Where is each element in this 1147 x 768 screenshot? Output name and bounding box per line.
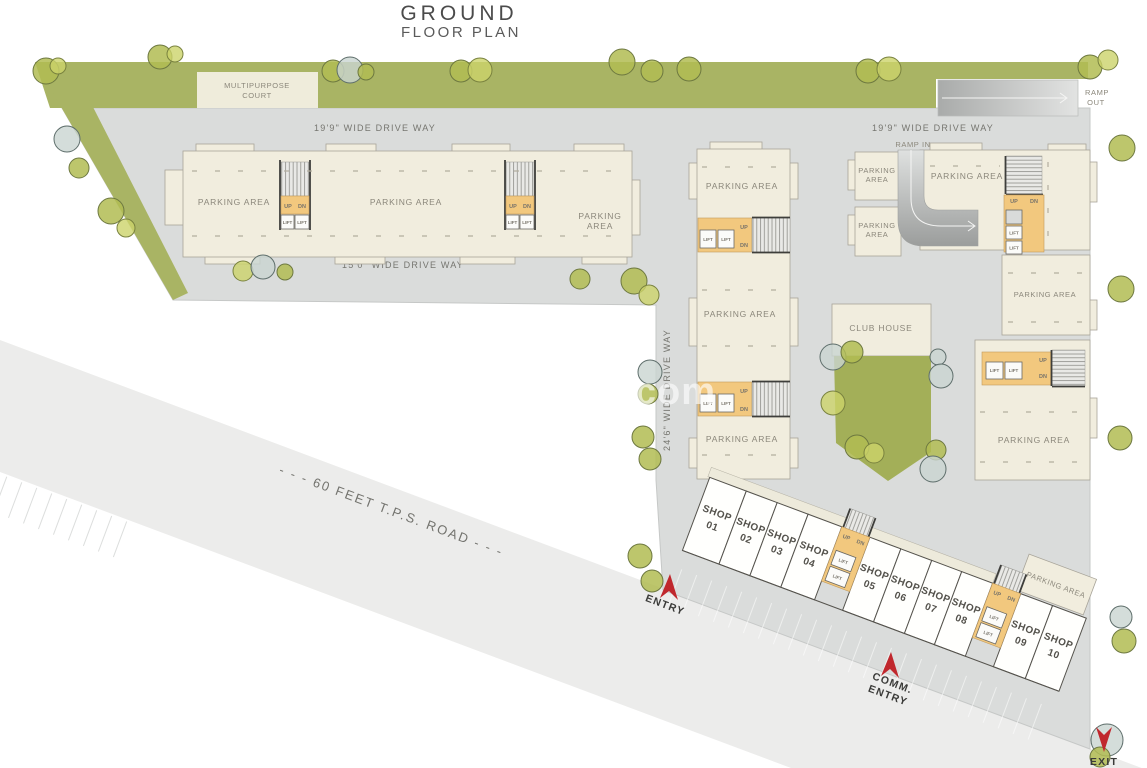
- tree-icon: [677, 57, 701, 81]
- parking-label: PARKING AREA: [1014, 290, 1077, 299]
- dn-label: DN: [1039, 374, 1047, 380]
- lift-label: LIFT: [297, 220, 307, 225]
- lift-label: LIFT: [1009, 231, 1019, 236]
- parking-label: PARKING: [578, 211, 621, 221]
- tree-icon: [641, 60, 663, 82]
- lift-label: LIFT: [1009, 368, 1019, 373]
- parking-label: PARKING AREA: [706, 434, 778, 444]
- tree-icon: [930, 349, 946, 365]
- parking-label: PARKING: [858, 166, 895, 175]
- tree-icon: [570, 269, 590, 289]
- multipurpose-court: [197, 72, 318, 108]
- lift-label: LIFT: [508, 220, 518, 225]
- middle-building: PARKING AREA PARKING AREA PARKING AREA L…: [689, 142, 798, 479]
- lift-label: LIFT: [990, 368, 1000, 373]
- lift-label: LIFT: [522, 220, 532, 225]
- up-label: UP: [284, 204, 292, 210]
- lift-label: LIFT: [721, 237, 731, 242]
- club-house-label: CLUB HOUSE: [849, 323, 912, 333]
- tree-icon: [877, 57, 901, 81]
- green-strip-top: [35, 62, 1088, 108]
- tree-icon: [117, 219, 135, 237]
- parking-label: PARKING: [858, 221, 895, 230]
- tree-icon: [841, 341, 863, 363]
- ramp-in-label: RAMP IN: [895, 140, 930, 149]
- tree-icon: [929, 364, 953, 388]
- tree-icon: [1110, 606, 1132, 628]
- tree-icon: [628, 544, 652, 568]
- lift-label: LIFT: [703, 237, 713, 242]
- parking-label: PARKING AREA: [198, 197, 270, 207]
- tree-icon: [641, 570, 663, 592]
- parking-label: AREA: [587, 221, 613, 231]
- up-label: UP: [1039, 358, 1047, 364]
- tree-icon: [1108, 426, 1132, 450]
- driveway-199-left: 19'9" WIDE DRIVE WAY: [314, 123, 436, 133]
- parking-label: AREA: [866, 175, 889, 184]
- tree-icon: [50, 58, 66, 74]
- up-label: UP: [1010, 199, 1018, 205]
- tree-icon: [639, 285, 659, 305]
- stair-lift-core: UP DN LIFT LIFT: [1004, 156, 1044, 254]
- parking-label: PARKING AREA: [706, 181, 778, 191]
- parking-label: PARKING AREA: [370, 197, 442, 207]
- up-label: UP: [740, 389, 748, 395]
- tree-icon: [864, 443, 884, 463]
- tree-icon: [167, 46, 183, 62]
- tree-icon: [98, 198, 124, 224]
- up-label: UP: [509, 204, 517, 210]
- driveway-199-right: 19'9" WIDE DRIVE WAY: [872, 123, 994, 133]
- stair-lift-core: LIFT LIFT UP DN: [698, 218, 790, 253]
- tree-icon: [1112, 629, 1136, 653]
- parking-label: AREA: [866, 230, 889, 239]
- court-label-line1: MULTIPURPOSE: [224, 81, 290, 90]
- lift-label: LIFT: [1009, 246, 1019, 251]
- parking-label: PARKING AREA: [998, 435, 1070, 445]
- floor-plan-canvas: - - - 60 FEET T.P.S. ROAD - - - MULTIPUR…: [0, 0, 1147, 768]
- dn-label: DN: [740, 243, 748, 249]
- page-title-line1: GROUND: [400, 2, 517, 25]
- dn-label: DN: [298, 204, 306, 210]
- parking-label: PARKING AREA: [931, 171, 1003, 181]
- up-label: UP: [740, 225, 748, 231]
- page-title-line2: FLOOR PLAN: [401, 24, 521, 41]
- tree-icon: [251, 255, 275, 279]
- tree-icon: [358, 64, 374, 80]
- lift-label: LIFT: [721, 401, 731, 406]
- tree-icon: [639, 448, 661, 470]
- court-label-line2: COURT: [242, 91, 272, 100]
- tree-icon: [1098, 50, 1118, 70]
- tree-icon: [632, 426, 654, 448]
- tree-icon: [1108, 276, 1134, 302]
- tree-icon: [1109, 135, 1135, 161]
- tree-icon: [54, 126, 80, 152]
- ramp-out-label-line1: RAMP: [1085, 88, 1109, 97]
- ramp-out-label-line2: OUT: [1087, 98, 1105, 107]
- dn-label: DN: [1030, 199, 1038, 205]
- watermark: EasyProps.com: [418, 371, 716, 413]
- tree-icon: [609, 49, 635, 75]
- parking-label: PARKING AREA: [704, 309, 776, 319]
- exit-label: EXIT: [1090, 756, 1118, 768]
- tree-icon: [856, 59, 880, 83]
- ground-floor-plan: - - - 60 FEET T.P.S. ROAD - - - MULTIPUR…: [0, 0, 1147, 768]
- stair-lift-core: LIFT LIFT UP DN: [982, 350, 1085, 387]
- tree-icon: [468, 58, 492, 82]
- tree-icon: [233, 261, 253, 281]
- dn-label: DN: [523, 204, 531, 210]
- tree-icon: [69, 158, 89, 178]
- lift-label: LIFT: [283, 220, 293, 225]
- stair-lift-core: UP DN LIFT LIFT: [505, 160, 535, 230]
- left-building: PARKING AREA PARKING AREA PARKING AREA U…: [165, 144, 640, 264]
- tree-icon: [277, 264, 293, 280]
- tree-icon: [920, 456, 946, 482]
- dn-label: DN: [740, 407, 748, 413]
- tree-icon: [821, 391, 845, 415]
